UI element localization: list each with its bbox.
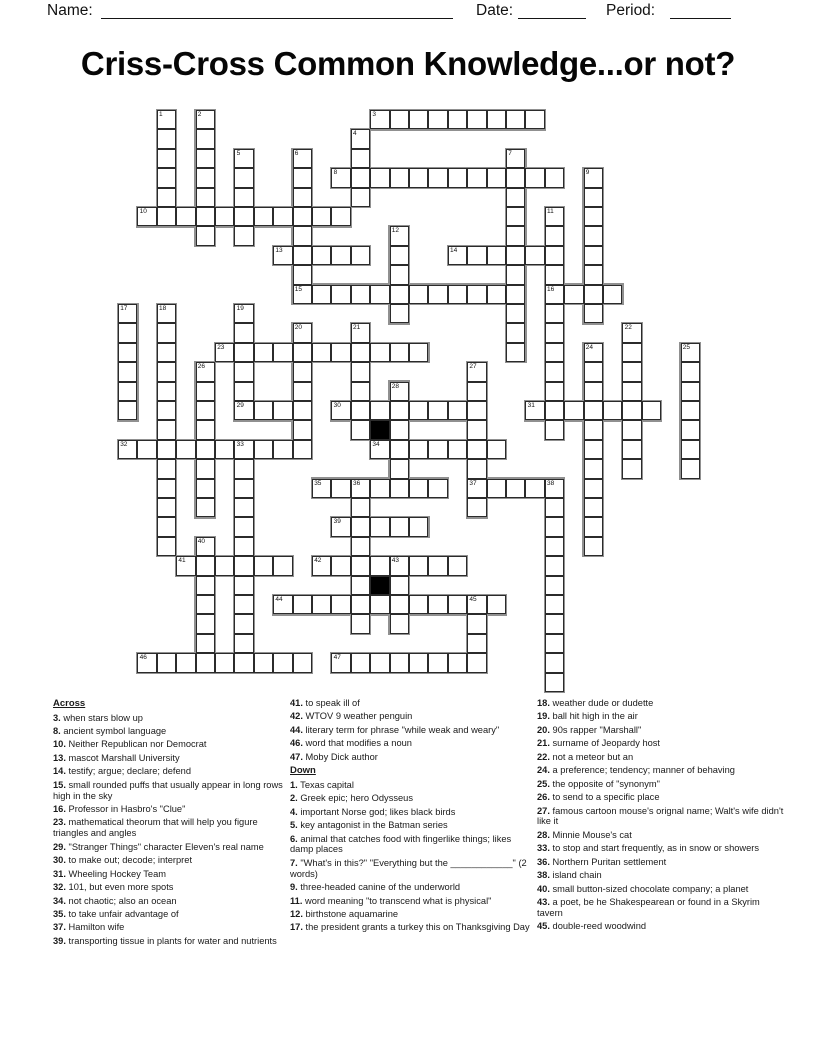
grid-cell[interactable]: [293, 595, 312, 614]
grid-cell[interactable]: [351, 188, 370, 207]
grid-cell[interactable]: [681, 440, 700, 459]
grid-cell[interactable]: [487, 595, 506, 614]
grid-cell[interactable]: 16: [545, 285, 564, 304]
grid-cell[interactable]: [370, 343, 389, 362]
grid-cell[interactable]: [157, 401, 176, 420]
grid-cell[interactable]: [448, 401, 467, 420]
grid-cell[interactable]: [409, 110, 428, 129]
grid-cell[interactable]: [157, 537, 176, 556]
grid-cell[interactable]: [467, 246, 486, 265]
grid-cell[interactable]: 9: [584, 168, 603, 187]
grid-cell[interactable]: 46: [137, 653, 156, 672]
grid-cell[interactable]: [196, 498, 215, 517]
grid-cell[interactable]: 31: [525, 401, 544, 420]
grid-cell[interactable]: [312, 343, 331, 362]
grid-cell[interactable]: 19: [234, 304, 253, 323]
grid-cell[interactable]: [642, 401, 661, 420]
grid-cell[interactable]: [409, 401, 428, 420]
grid-cell[interactable]: [157, 653, 176, 672]
grid-cell[interactable]: [390, 459, 409, 478]
grid-cell[interactable]: [545, 382, 564, 401]
grid-cell[interactable]: [428, 401, 447, 420]
grid-cell[interactable]: [118, 362, 137, 381]
grid-cell[interactable]: [196, 634, 215, 653]
grid-cell[interactable]: [584, 226, 603, 245]
grid-cell[interactable]: [564, 285, 583, 304]
grid-cell[interactable]: [390, 595, 409, 614]
grid-cell[interactable]: [390, 479, 409, 498]
grid-cell[interactable]: [428, 595, 447, 614]
grid-cell[interactable]: [564, 401, 583, 420]
grid-cell[interactable]: [467, 285, 486, 304]
grid-cell[interactable]: [331, 246, 350, 265]
grid-cell[interactable]: [273, 401, 292, 420]
grid-cell[interactable]: [196, 653, 215, 672]
grid-cell[interactable]: [545, 673, 564, 692]
grid-cell[interactable]: [351, 382, 370, 401]
grid-cell[interactable]: [215, 440, 234, 459]
grid-cell[interactable]: [681, 401, 700, 420]
grid-cell[interactable]: [467, 653, 486, 672]
grid-cell[interactable]: [215, 556, 234, 575]
grid-cell[interactable]: [176, 440, 195, 459]
grid-cell[interactable]: 25: [681, 343, 700, 362]
grid-cell[interactable]: [390, 285, 409, 304]
grid-cell[interactable]: 15: [293, 285, 312, 304]
grid-cell[interactable]: [196, 595, 215, 614]
grid-cell[interactable]: [351, 537, 370, 556]
grid-cell[interactable]: [584, 459, 603, 478]
grid-cell[interactable]: [428, 479, 447, 498]
grid-cell[interactable]: [157, 168, 176, 187]
grid-cell[interactable]: [506, 304, 525, 323]
grid-cell[interactable]: 23: [215, 343, 234, 362]
grid-cell[interactable]: [584, 285, 603, 304]
grid-cell[interactable]: [622, 420, 641, 439]
grid-cell[interactable]: [234, 362, 253, 381]
grid-cell[interactable]: [176, 207, 195, 226]
grid-cell[interactable]: [234, 517, 253, 536]
grid-cell[interactable]: [487, 285, 506, 304]
grid-cell[interactable]: [293, 420, 312, 439]
grid-cell[interactable]: [234, 459, 253, 478]
grid-cell[interactable]: [409, 517, 428, 536]
grid-cell[interactable]: [215, 653, 234, 672]
grid-cell[interactable]: [157, 382, 176, 401]
grid-cell[interactable]: [448, 556, 467, 575]
grid-cell[interactable]: 1: [157, 110, 176, 129]
grid-cell[interactable]: [584, 440, 603, 459]
grid-cell[interactable]: [584, 537, 603, 556]
grid-cell[interactable]: [525, 479, 544, 498]
grid-cell[interactable]: [622, 459, 641, 478]
grid-cell[interactable]: [409, 285, 428, 304]
grid-cell[interactable]: [448, 653, 467, 672]
grid-cell[interactable]: [409, 479, 428, 498]
grid-cell[interactable]: [312, 595, 331, 614]
grid-cell[interactable]: [351, 556, 370, 575]
grid-cell[interactable]: [390, 614, 409, 633]
grid-cell[interactable]: [157, 129, 176, 148]
grid-cell[interactable]: [234, 537, 253, 556]
grid-cell[interactable]: [312, 285, 331, 304]
grid-cell[interactable]: [196, 168, 215, 187]
grid-cell[interactable]: [234, 634, 253, 653]
grid-cell[interactable]: [234, 498, 253, 517]
grid-cell[interactable]: [196, 188, 215, 207]
grid-cell[interactable]: [525, 168, 544, 187]
grid-cell[interactable]: [196, 226, 215, 245]
grid-cell[interactable]: [312, 207, 331, 226]
grid-cell[interactable]: [409, 343, 428, 362]
grid-cell[interactable]: [293, 653, 312, 672]
grid-cell[interactable]: [234, 343, 253, 362]
grid-cell[interactable]: [390, 576, 409, 595]
grid-cell[interactable]: 32: [118, 440, 137, 459]
grid-cell[interactable]: 22: [622, 323, 641, 342]
grid-cell[interactable]: [681, 459, 700, 478]
grid-cell[interactable]: [428, 110, 447, 129]
grid-cell[interactable]: [622, 382, 641, 401]
grid-cell[interactable]: [234, 207, 253, 226]
grid-cell[interactable]: [351, 362, 370, 381]
grid-cell[interactable]: [196, 556, 215, 575]
grid-cell[interactable]: [525, 110, 544, 129]
grid-cell[interactable]: [196, 401, 215, 420]
grid-cell[interactable]: [331, 207, 350, 226]
grid-cell[interactable]: [157, 440, 176, 459]
grid-cell[interactable]: [234, 188, 253, 207]
grid-cell[interactable]: [215, 207, 234, 226]
grid-cell[interactable]: 5: [234, 149, 253, 168]
grid-cell[interactable]: [584, 401, 603, 420]
grid-cell[interactable]: [545, 614, 564, 633]
grid-cell[interactable]: [428, 556, 447, 575]
grid-cell[interactable]: [545, 634, 564, 653]
grid-cell[interactable]: [467, 634, 486, 653]
grid-cell[interactable]: [351, 285, 370, 304]
grid-cell[interactable]: [157, 459, 176, 478]
grid-cell[interactable]: [370, 653, 389, 672]
grid-cell[interactable]: [467, 168, 486, 187]
grid-cell[interactable]: 35: [312, 479, 331, 498]
grid-cell[interactable]: [370, 285, 389, 304]
grid-cell[interactable]: [584, 479, 603, 498]
grid-cell[interactable]: 18: [157, 304, 176, 323]
grid-cell[interactable]: 43: [390, 556, 409, 575]
grid-cell[interactable]: [584, 420, 603, 439]
grid-cell[interactable]: 36: [351, 479, 370, 498]
grid-cell[interactable]: [506, 343, 525, 362]
grid-cell[interactable]: [545, 595, 564, 614]
grid-cell[interactable]: [545, 556, 564, 575]
grid-cell[interactable]: [584, 382, 603, 401]
grid-cell[interactable]: [234, 556, 253, 575]
grid-cell[interactable]: 45: [467, 595, 486, 614]
grid-cell[interactable]: [254, 401, 273, 420]
grid-cell[interactable]: [118, 401, 137, 420]
grid-cell[interactable]: [196, 149, 215, 168]
grid-cell[interactable]: [157, 479, 176, 498]
grid-cell[interactable]: [681, 420, 700, 439]
grid-cell[interactable]: [196, 459, 215, 478]
grid-cell[interactable]: [331, 479, 350, 498]
grid-cell[interactable]: [448, 168, 467, 187]
grid-cell[interactable]: 8: [331, 168, 350, 187]
grid-cell[interactable]: [506, 168, 525, 187]
grid-cell[interactable]: 44: [273, 595, 292, 614]
grid-cell[interactable]: [390, 653, 409, 672]
grid-cell[interactable]: [370, 556, 389, 575]
grid-cell[interactable]: [331, 343, 350, 362]
grid-cell[interactable]: [293, 188, 312, 207]
grid-cell[interactable]: 39: [331, 517, 350, 536]
grid-cell[interactable]: [351, 420, 370, 439]
grid-cell[interactable]: 40: [196, 537, 215, 556]
grid-cell[interactable]: [118, 382, 137, 401]
grid-cell[interactable]: [234, 614, 253, 633]
grid-cell[interactable]: [351, 343, 370, 362]
grid-cell[interactable]: [157, 362, 176, 381]
grid-cell[interactable]: [390, 401, 409, 420]
grid-cell[interactable]: [234, 382, 253, 401]
grid-cell[interactable]: [409, 653, 428, 672]
grid-cell[interactable]: [234, 479, 253, 498]
grid-cell[interactable]: [545, 653, 564, 672]
grid-cell[interactable]: [545, 168, 564, 187]
grid-cell[interactable]: 6: [293, 149, 312, 168]
grid-cell[interactable]: [118, 343, 137, 362]
grid-cell[interactable]: [545, 343, 564, 362]
grid-cell[interactable]: [390, 343, 409, 362]
grid-cell[interactable]: [448, 285, 467, 304]
grid-cell[interactable]: [254, 440, 273, 459]
grid-cell[interactable]: 7: [506, 149, 525, 168]
grid-cell[interactable]: [506, 323, 525, 342]
grid-cell[interactable]: [428, 285, 447, 304]
grid-cell[interactable]: [390, 110, 409, 129]
grid-cell[interactable]: [118, 323, 137, 342]
grid-cell[interactable]: [293, 343, 312, 362]
grid-cell[interactable]: [506, 188, 525, 207]
grid-cell[interactable]: [370, 595, 389, 614]
grid-cell[interactable]: [545, 498, 564, 517]
grid-cell[interactable]: [584, 498, 603, 517]
grid-cell[interactable]: [622, 362, 641, 381]
grid-cell[interactable]: 38: [545, 479, 564, 498]
grid-cell[interactable]: [467, 459, 486, 478]
grid-cell[interactable]: [584, 207, 603, 226]
grid-cell[interactable]: [254, 343, 273, 362]
grid-cell[interactable]: [370, 401, 389, 420]
grid-cell[interactable]: [370, 479, 389, 498]
grid-cell[interactable]: 26: [196, 362, 215, 381]
grid-cell[interactable]: [545, 226, 564, 245]
grid-cell[interactable]: [409, 556, 428, 575]
grid-cell[interactable]: [506, 246, 525, 265]
grid-cell[interactable]: 3: [370, 110, 389, 129]
grid-cell[interactable]: [234, 595, 253, 614]
grid-cell[interactable]: [584, 265, 603, 284]
grid-cell[interactable]: [584, 246, 603, 265]
grid-cell[interactable]: [157, 149, 176, 168]
grid-cell[interactable]: [370, 168, 389, 187]
grid-cell[interactable]: [157, 323, 176, 342]
grid-cell[interactable]: [293, 440, 312, 459]
grid-cell[interactable]: [157, 188, 176, 207]
grid-cell[interactable]: [293, 226, 312, 245]
grid-cell[interactable]: [467, 614, 486, 633]
grid-cell[interactable]: 42: [312, 556, 331, 575]
grid-cell[interactable]: [467, 382, 486, 401]
grid-cell[interactable]: [351, 595, 370, 614]
grid-cell[interactable]: [196, 614, 215, 633]
grid-cell[interactable]: [273, 207, 292, 226]
grid-cell[interactable]: [351, 653, 370, 672]
grid-cell[interactable]: [196, 129, 215, 148]
grid-cell[interactable]: [351, 149, 370, 168]
grid-cell[interactable]: [467, 401, 486, 420]
grid-cell[interactable]: [293, 168, 312, 187]
grid-cell[interactable]: [390, 265, 409, 284]
grid-cell[interactable]: [487, 246, 506, 265]
grid-cell[interactable]: 2: [196, 110, 215, 129]
grid-cell[interactable]: [584, 517, 603, 536]
grid-cell[interactable]: 41: [176, 556, 195, 575]
grid-cell[interactable]: [584, 304, 603, 323]
grid-cell[interactable]: 17: [118, 304, 137, 323]
grid-cell[interactable]: [390, 304, 409, 323]
grid-cell[interactable]: [157, 498, 176, 517]
grid-cell[interactable]: [293, 362, 312, 381]
grid-cell[interactable]: [545, 323, 564, 342]
grid-cell[interactable]: [273, 653, 292, 672]
grid-cell[interactable]: 10: [137, 207, 156, 226]
grid-cell[interactable]: [525, 246, 544, 265]
grid-cell[interactable]: [196, 382, 215, 401]
grid-cell[interactable]: 30: [331, 401, 350, 420]
grid-cell[interactable]: [622, 440, 641, 459]
grid-cell[interactable]: [293, 207, 312, 226]
grid-cell[interactable]: [545, 576, 564, 595]
grid-cell[interactable]: [196, 479, 215, 498]
grid-cell[interactable]: [409, 595, 428, 614]
grid-cell[interactable]: [506, 265, 525, 284]
grid-cell[interactable]: [428, 168, 447, 187]
grid-cell[interactable]: [331, 595, 350, 614]
grid-cell[interactable]: [273, 343, 292, 362]
grid-cell[interactable]: [351, 498, 370, 517]
grid-cell[interactable]: [293, 382, 312, 401]
grid-cell[interactable]: [448, 440, 467, 459]
grid-cell[interactable]: [428, 440, 447, 459]
grid-cell[interactable]: [273, 556, 292, 575]
grid-cell[interactable]: 21: [351, 323, 370, 342]
grid-cell[interactable]: [254, 207, 273, 226]
grid-cell[interactable]: [487, 440, 506, 459]
grid-cell[interactable]: [351, 517, 370, 536]
grid-cell[interactable]: [157, 343, 176, 362]
grid-cell[interactable]: 20: [293, 323, 312, 342]
grid-cell[interactable]: [545, 265, 564, 284]
grid-cell[interactable]: [351, 614, 370, 633]
grid-cell[interactable]: [157, 517, 176, 536]
grid-cell[interactable]: [196, 420, 215, 439]
grid-cell[interactable]: 27: [467, 362, 486, 381]
grid-cell[interactable]: [254, 653, 273, 672]
grid-cell[interactable]: [331, 285, 350, 304]
grid-cell[interactable]: 47: [331, 653, 350, 672]
grid-cell[interactable]: [390, 440, 409, 459]
grid-cell[interactable]: 29: [234, 401, 253, 420]
grid-cell[interactable]: [622, 343, 641, 362]
grid-cell[interactable]: [157, 207, 176, 226]
grid-cell[interactable]: [273, 440, 292, 459]
grid-cell[interactable]: [487, 168, 506, 187]
grid-cell[interactable]: 14: [448, 246, 467, 265]
grid-cell[interactable]: [428, 653, 447, 672]
grid-cell[interactable]: [467, 420, 486, 439]
grid-cell[interactable]: [351, 246, 370, 265]
grid-cell[interactable]: [293, 265, 312, 284]
grid-cell[interactable]: [137, 440, 156, 459]
grid-cell[interactable]: [409, 440, 428, 459]
grid-cell[interactable]: [584, 188, 603, 207]
grid-cell[interactable]: 12: [390, 226, 409, 245]
grid-cell[interactable]: [681, 362, 700, 381]
grid-cell[interactable]: [234, 323, 253, 342]
grid-cell[interactable]: [370, 517, 389, 536]
grid-cell[interactable]: [157, 420, 176, 439]
grid-cell[interactable]: [467, 498, 486, 517]
grid-cell[interactable]: [234, 168, 253, 187]
grid-cell[interactable]: [448, 110, 467, 129]
grid-cell[interactable]: [196, 207, 215, 226]
grid-cell[interactable]: [467, 110, 486, 129]
grid-cell[interactable]: [293, 246, 312, 265]
grid-cell[interactable]: [196, 440, 215, 459]
grid-cell[interactable]: [545, 246, 564, 265]
grid-cell[interactable]: [331, 556, 350, 575]
grid-cell[interactable]: [545, 304, 564, 323]
grid-cell[interactable]: [351, 401, 370, 420]
grid-cell[interactable]: 24: [584, 343, 603, 362]
grid-cell[interactable]: 34: [370, 440, 389, 459]
grid-cell[interactable]: [545, 420, 564, 439]
grid-cell[interactable]: [506, 285, 525, 304]
grid-cell[interactable]: [196, 576, 215, 595]
grid-cell[interactable]: [603, 401, 622, 420]
grid-cell[interactable]: [487, 110, 506, 129]
grid-cell[interactable]: [351, 576, 370, 595]
grid-cell[interactable]: [351, 168, 370, 187]
grid-cell[interactable]: [506, 226, 525, 245]
grid-cell[interactable]: 33: [234, 440, 253, 459]
grid-cell[interactable]: [622, 401, 641, 420]
grid-cell[interactable]: [390, 420, 409, 439]
grid-cell[interactable]: [545, 401, 564, 420]
grid-cell[interactable]: [545, 362, 564, 381]
grid-cell[interactable]: [545, 517, 564, 536]
grid-cell[interactable]: [390, 517, 409, 536]
grid-cell[interactable]: [254, 556, 273, 575]
grid-cell[interactable]: 37: [467, 479, 486, 498]
grid-cell[interactable]: [234, 653, 253, 672]
grid-cell[interactable]: 4: [351, 129, 370, 148]
grid-cell[interactable]: [506, 110, 525, 129]
grid-cell[interactable]: [584, 362, 603, 381]
grid-cell[interactable]: [545, 537, 564, 556]
